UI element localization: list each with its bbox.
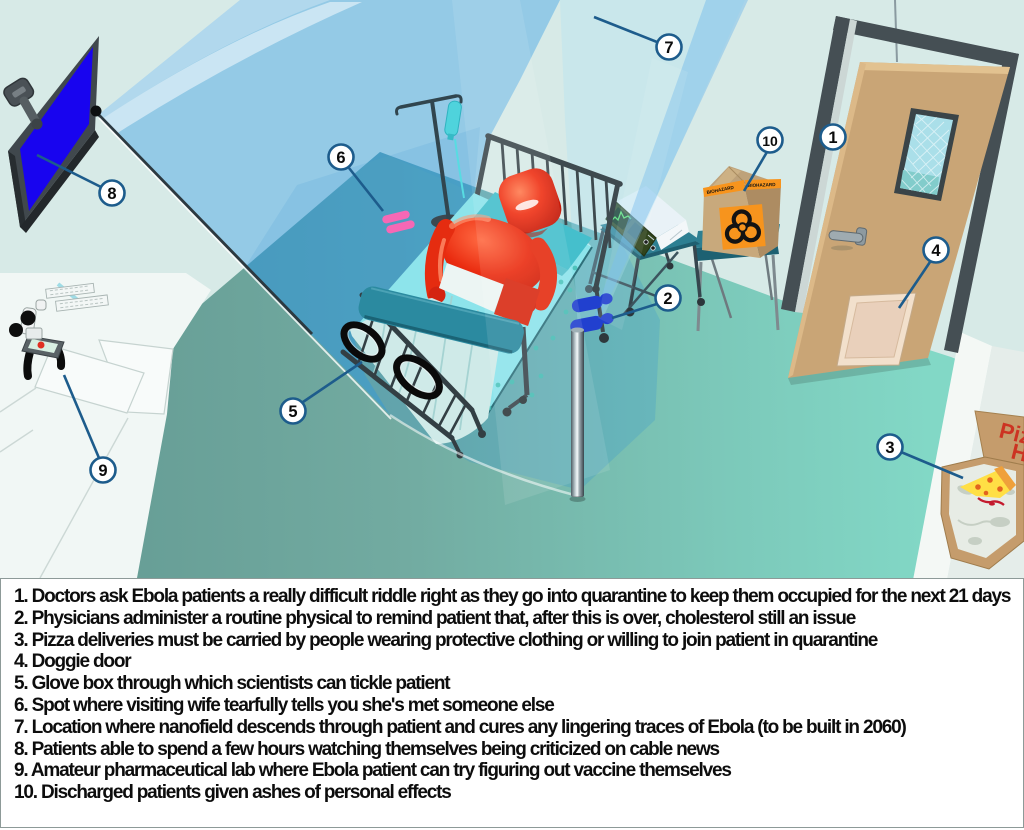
svg-text:3: 3 [885,439,894,457]
svg-text:6: 6 [336,149,345,167]
svg-text:9: 9 [98,462,107,480]
svg-text:10: 10 [762,133,778,149]
svg-text:BIOHAZARD: BIOHAZARD [748,182,776,188]
svg-text:4: 4 [931,242,941,260]
svg-text:2: 2 [663,290,672,308]
svg-text:7: 7 [664,39,673,57]
svg-text:5: 5 [288,403,297,421]
svg-text:8: 8 [107,185,116,203]
svg-text:1: 1 [828,129,837,147]
